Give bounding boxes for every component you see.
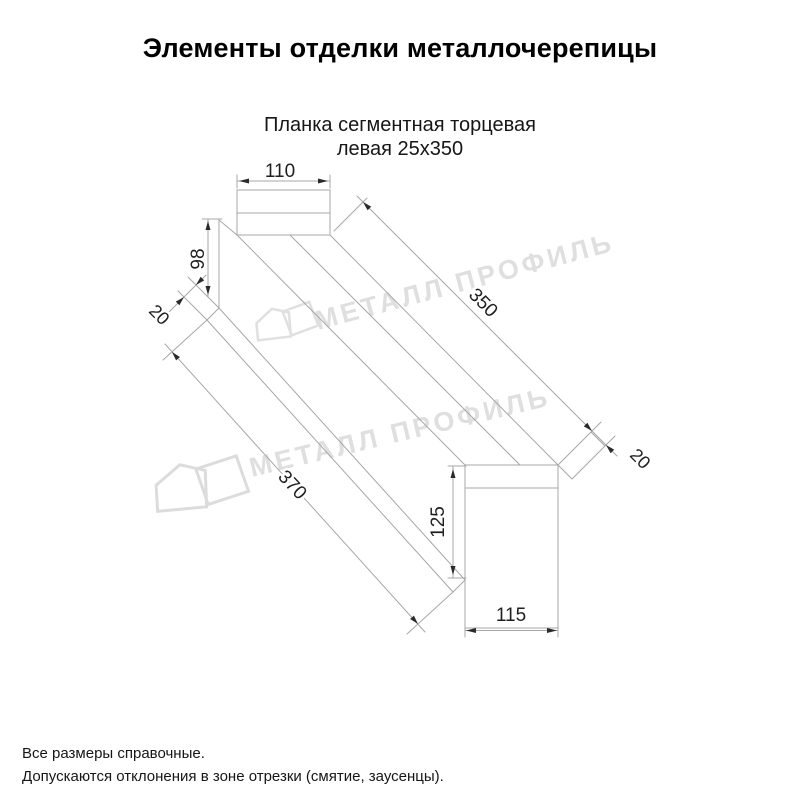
house-logo-icon bbox=[150, 454, 250, 515]
arrowhead bbox=[547, 628, 557, 633]
ext-line bbox=[407, 592, 453, 634]
dim-label-near-width: 115 bbox=[496, 605, 526, 626]
far-corner-top-edge bbox=[219, 220, 237, 235]
arrowhead bbox=[451, 566, 456, 575]
ext-line bbox=[188, 277, 219, 308]
ext-line bbox=[163, 320, 207, 360]
dim-label-tab-width: 110 bbox=[265, 161, 295, 182]
near-end-face bbox=[465, 465, 558, 628]
watermark-upper: МЕТАЛЛ ПРОФИЛЬ bbox=[252, 227, 617, 343]
front-hem-far-edge bbox=[207, 308, 219, 320]
ext-line bbox=[591, 422, 601, 432]
arrowhead bbox=[206, 286, 211, 295]
dim-label-far-hem: 20 bbox=[145, 301, 173, 329]
ext-line bbox=[178, 291, 207, 320]
technical-drawing: МЕТАЛЛ ПРОФИЛЬ МЕТАЛЛ ПРОФИЛЬ bbox=[0, 0, 800, 800]
dimension-labels: 110 98 20 350 20 370 125 115 bbox=[145, 161, 654, 626]
arrowhead bbox=[451, 469, 456, 478]
house-logo-shape bbox=[195, 455, 250, 506]
watermark-lower: МЕТАЛЛ ПРОФИЛЬ bbox=[150, 382, 553, 516]
end-hem-flap bbox=[558, 432, 605, 479]
dim-label-far-height: 98 bbox=[188, 248, 209, 269]
watermark-text: МЕТАЛЛ ПРОФИЛЬ bbox=[246, 382, 553, 483]
dim-label-near-height: 125 bbox=[428, 506, 449, 538]
page: Элементы отделки металлочерепицы Планка … bbox=[0, 0, 800, 800]
arrowhead bbox=[466, 628, 476, 633]
dim-label-end-hem: 20 bbox=[626, 445, 654, 473]
arrowhead bbox=[318, 179, 328, 184]
front-hem-near-edge bbox=[453, 580, 465, 592]
arrowhead bbox=[206, 221, 211, 230]
watermark-text: МЕТАЛЛ ПРОФИЛЬ bbox=[312, 227, 618, 336]
ext-line bbox=[334, 198, 367, 231]
footnote-2: Допускаются отклонения в зоне отрезки (с… bbox=[22, 765, 762, 788]
house-logo-icon bbox=[252, 300, 319, 343]
footnote-1: Все размеры справочные. bbox=[22, 742, 762, 765]
arrowhead bbox=[239, 179, 249, 184]
ext-line bbox=[605, 436, 615, 446]
footnotes: Все размеры справочные. Допускаются откл… bbox=[22, 742, 762, 788]
